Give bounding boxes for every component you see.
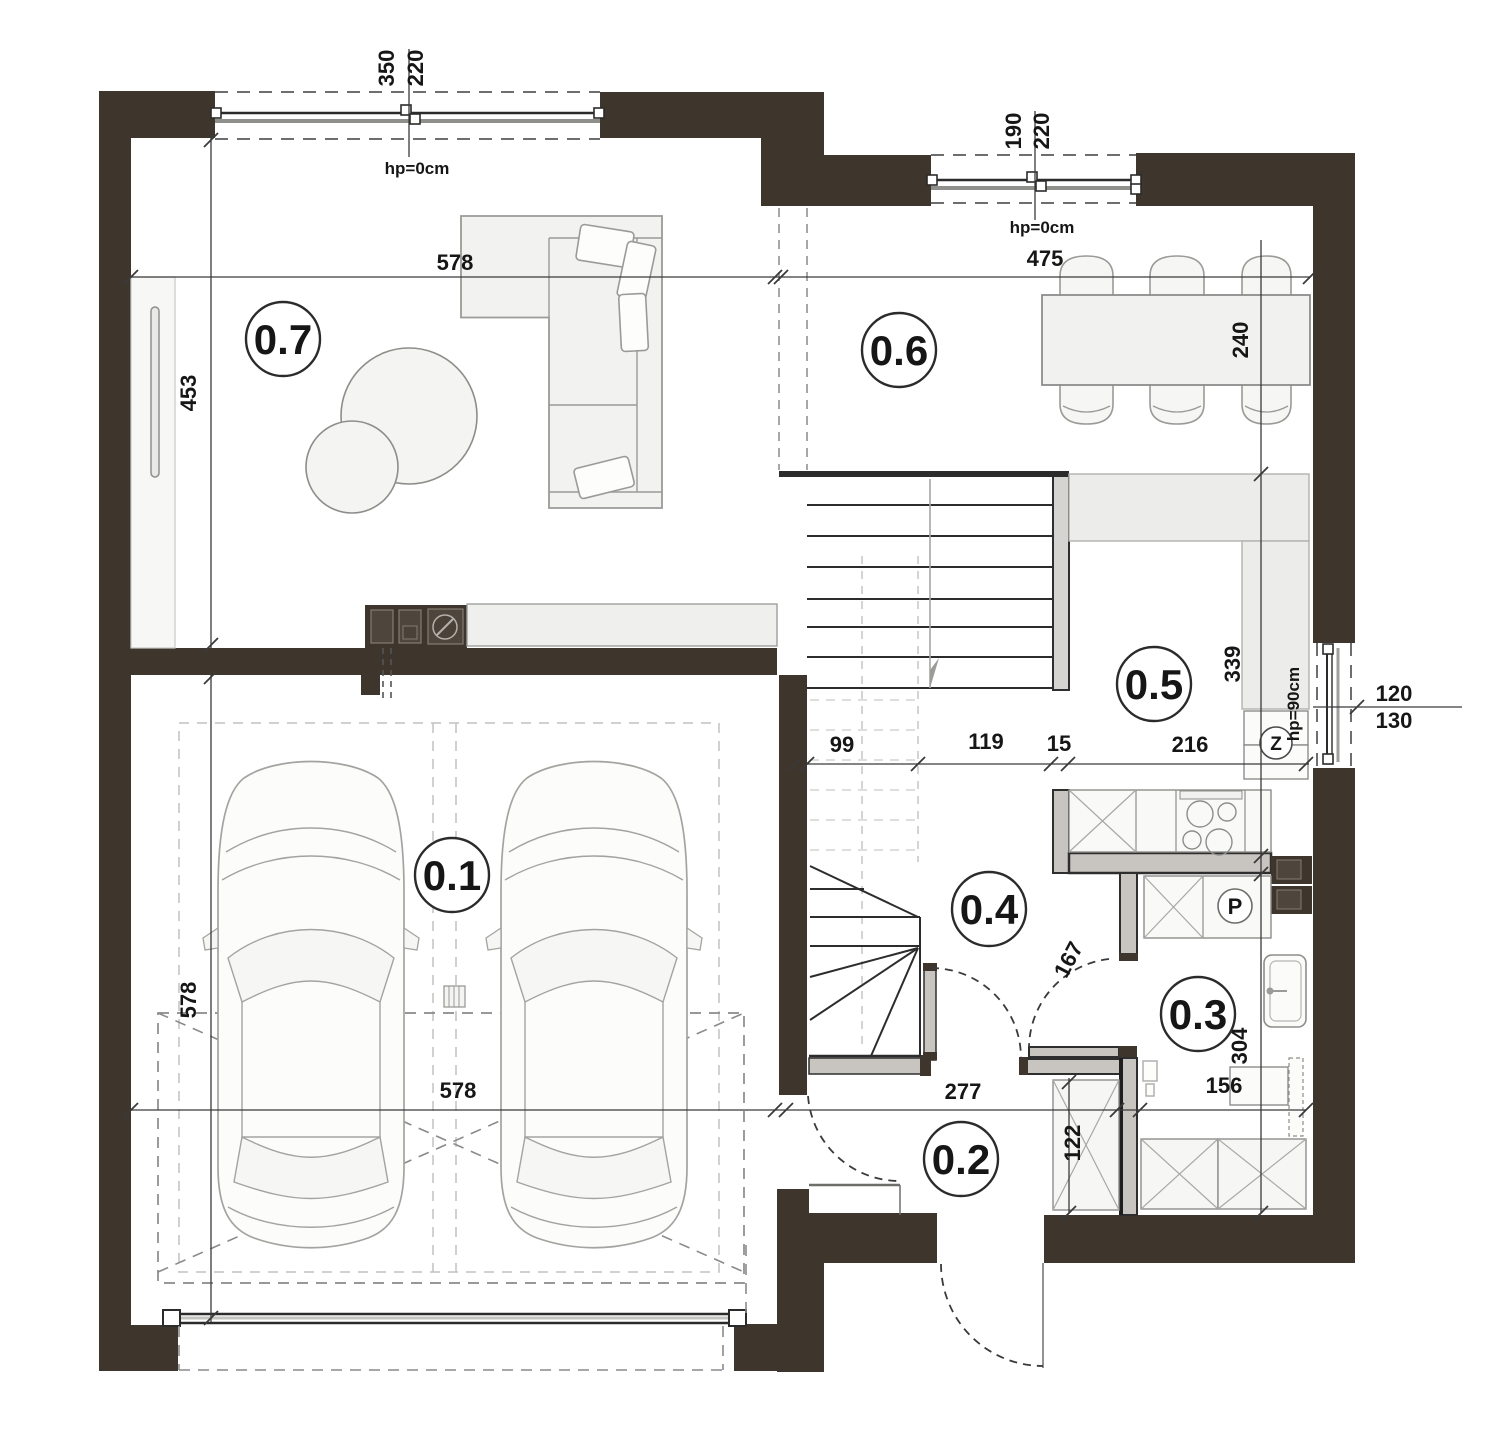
svg-text:190: 190: [1001, 113, 1026, 150]
svg-text:0.2: 0.2: [932, 1136, 990, 1183]
svg-text:99: 99: [830, 732, 854, 757]
svg-text:475: 475: [1027, 246, 1064, 271]
svg-text:350: 350: [374, 50, 399, 87]
svg-text:Z: Z: [1270, 734, 1282, 755]
svg-text:hp=90cm: hp=90cm: [1284, 667, 1303, 741]
svg-text:0.5: 0.5: [1125, 661, 1183, 708]
svg-text:P: P: [1228, 894, 1243, 919]
svg-text:122: 122: [1060, 1125, 1085, 1162]
svg-text:220: 220: [403, 50, 428, 87]
svg-text:216: 216: [1172, 732, 1209, 757]
svg-text:0.6: 0.6: [870, 327, 928, 374]
svg-text:339: 339: [1220, 646, 1245, 683]
svg-text:240: 240: [1228, 322, 1253, 359]
svg-text:156: 156: [1206, 1073, 1243, 1098]
svg-text:578: 578: [176, 982, 201, 1019]
svg-text:578: 578: [437, 250, 474, 275]
svg-text:0.3: 0.3: [1169, 991, 1227, 1038]
svg-text:0.1: 0.1: [423, 852, 481, 899]
svg-text:hp=0cm: hp=0cm: [385, 159, 450, 178]
svg-text:130: 130: [1376, 708, 1413, 733]
svg-text:0.4: 0.4: [960, 886, 1019, 933]
svg-text:120: 120: [1376, 681, 1413, 706]
svg-text:15: 15: [1047, 731, 1071, 756]
svg-text:453: 453: [176, 375, 201, 412]
svg-text:hp=0cm: hp=0cm: [1010, 218, 1075, 237]
svg-text:119: 119: [968, 729, 1004, 754]
svg-text:0.7: 0.7: [254, 316, 312, 363]
svg-text:578: 578: [440, 1078, 477, 1103]
svg-text:220: 220: [1029, 113, 1054, 150]
svg-text:277: 277: [945, 1079, 982, 1104]
